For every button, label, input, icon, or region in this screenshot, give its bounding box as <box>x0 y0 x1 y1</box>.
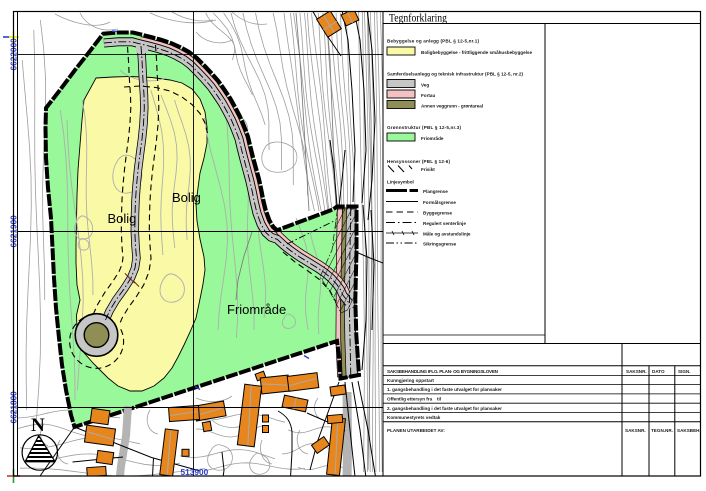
svg-text:Friområde: Friområde <box>421 135 444 141</box>
svg-text:Tegnforklaring: Tegnforklaring <box>389 10 447 24</box>
svg-text:Bolig: Bolig <box>108 211 137 226</box>
svg-text:Kunngjøring oppstart: Kunngjøring oppstart <box>387 378 434 383</box>
svg-text:Kommunestyrets vedtak: Kommunestyrets vedtak <box>387 415 441 420</box>
svg-text:Samferdselsanlegg og teknisk i: Samferdselsanlegg og teknisk infrastrukt… <box>387 72 523 77</box>
svg-text:DATO: DATO <box>652 369 665 374</box>
svg-text:Regulert senterlinje: Regulert senterlinje <box>423 221 466 226</box>
svg-text:Frisikt: Frisikt <box>421 167 435 172</box>
svg-text:SAKSNR.: SAKSNR. <box>626 369 647 374</box>
svg-text:Boligbebyggelse - frittliggend: Boligbebyggelse - frittliggende småhusbe… <box>421 49 532 55</box>
svg-text:Offentlig ettersyn fra: Offentlig ettersyn fra <box>387 397 433 402</box>
svg-text:Veg: Veg <box>421 83 429 88</box>
svg-text:1. gangsbehandling i det faste: 1. gangsbehandling i det faste utvalget … <box>387 387 502 392</box>
svg-text:SIGN.: SIGN. <box>678 369 691 374</box>
svg-text:Plangrense: Plangrense <box>423 189 448 194</box>
svg-text:Sikringsgrense: Sikringsgrense <box>423 242 457 247</box>
svg-text:Linjesymbol: Linjesymbol <box>387 180 414 185</box>
svg-text:Friområde: Friområde <box>227 302 286 317</box>
svg-text:Bolig: Bolig <box>172 190 201 205</box>
svg-text:SAKSBEH.: SAKSBEH. <box>677 428 701 433</box>
svg-text:SAKSNR.: SAKSNR. <box>625 428 646 433</box>
svg-text:N: N <box>31 415 45 436</box>
svg-text:Annen veggrunn - grøntareal: Annen veggrunn - grøntareal <box>421 104 483 109</box>
svg-text:Byggegrense: Byggegrense <box>423 211 453 216</box>
svg-text:Bebyggelse og anlegg (PBL § 12: Bebyggelse og anlegg (PBL § 12-5,nr.1) <box>387 39 479 44</box>
svg-text:Formålsgrense: Formålsgrense <box>423 199 456 205</box>
svg-text:Grønnstruktur (PBL § 12-5,nr.3: Grønnstruktur (PBL § 12-5,nr.3) <box>387 125 461 130</box>
svg-text:PLANEN UTARBEIDET AV:: PLANEN UTARBEIDET AV: <box>387 428 445 433</box>
svg-text:Måle og avstandslinje: Måle og avstandslinje <box>423 231 471 237</box>
svg-text:Fortau: Fortau <box>421 93 435 98</box>
svg-text:Hensynssoner (PBL § 12-6): Hensynssoner (PBL § 12-6) <box>387 159 450 164</box>
svg-text:SAKSBEHANDLING IFLG. PLAN- OG: SAKSBEHANDLING IFLG. PLAN- OG BYGNINGSLO… <box>387 369 499 374</box>
svg-text:TEGN.NR.: TEGN.NR. <box>651 428 673 433</box>
svg-text:til: til <box>437 397 441 402</box>
svg-text:2. gangsbehandling i det faste: 2. gangsbehandling i det faste utvalget … <box>387 406 502 411</box>
